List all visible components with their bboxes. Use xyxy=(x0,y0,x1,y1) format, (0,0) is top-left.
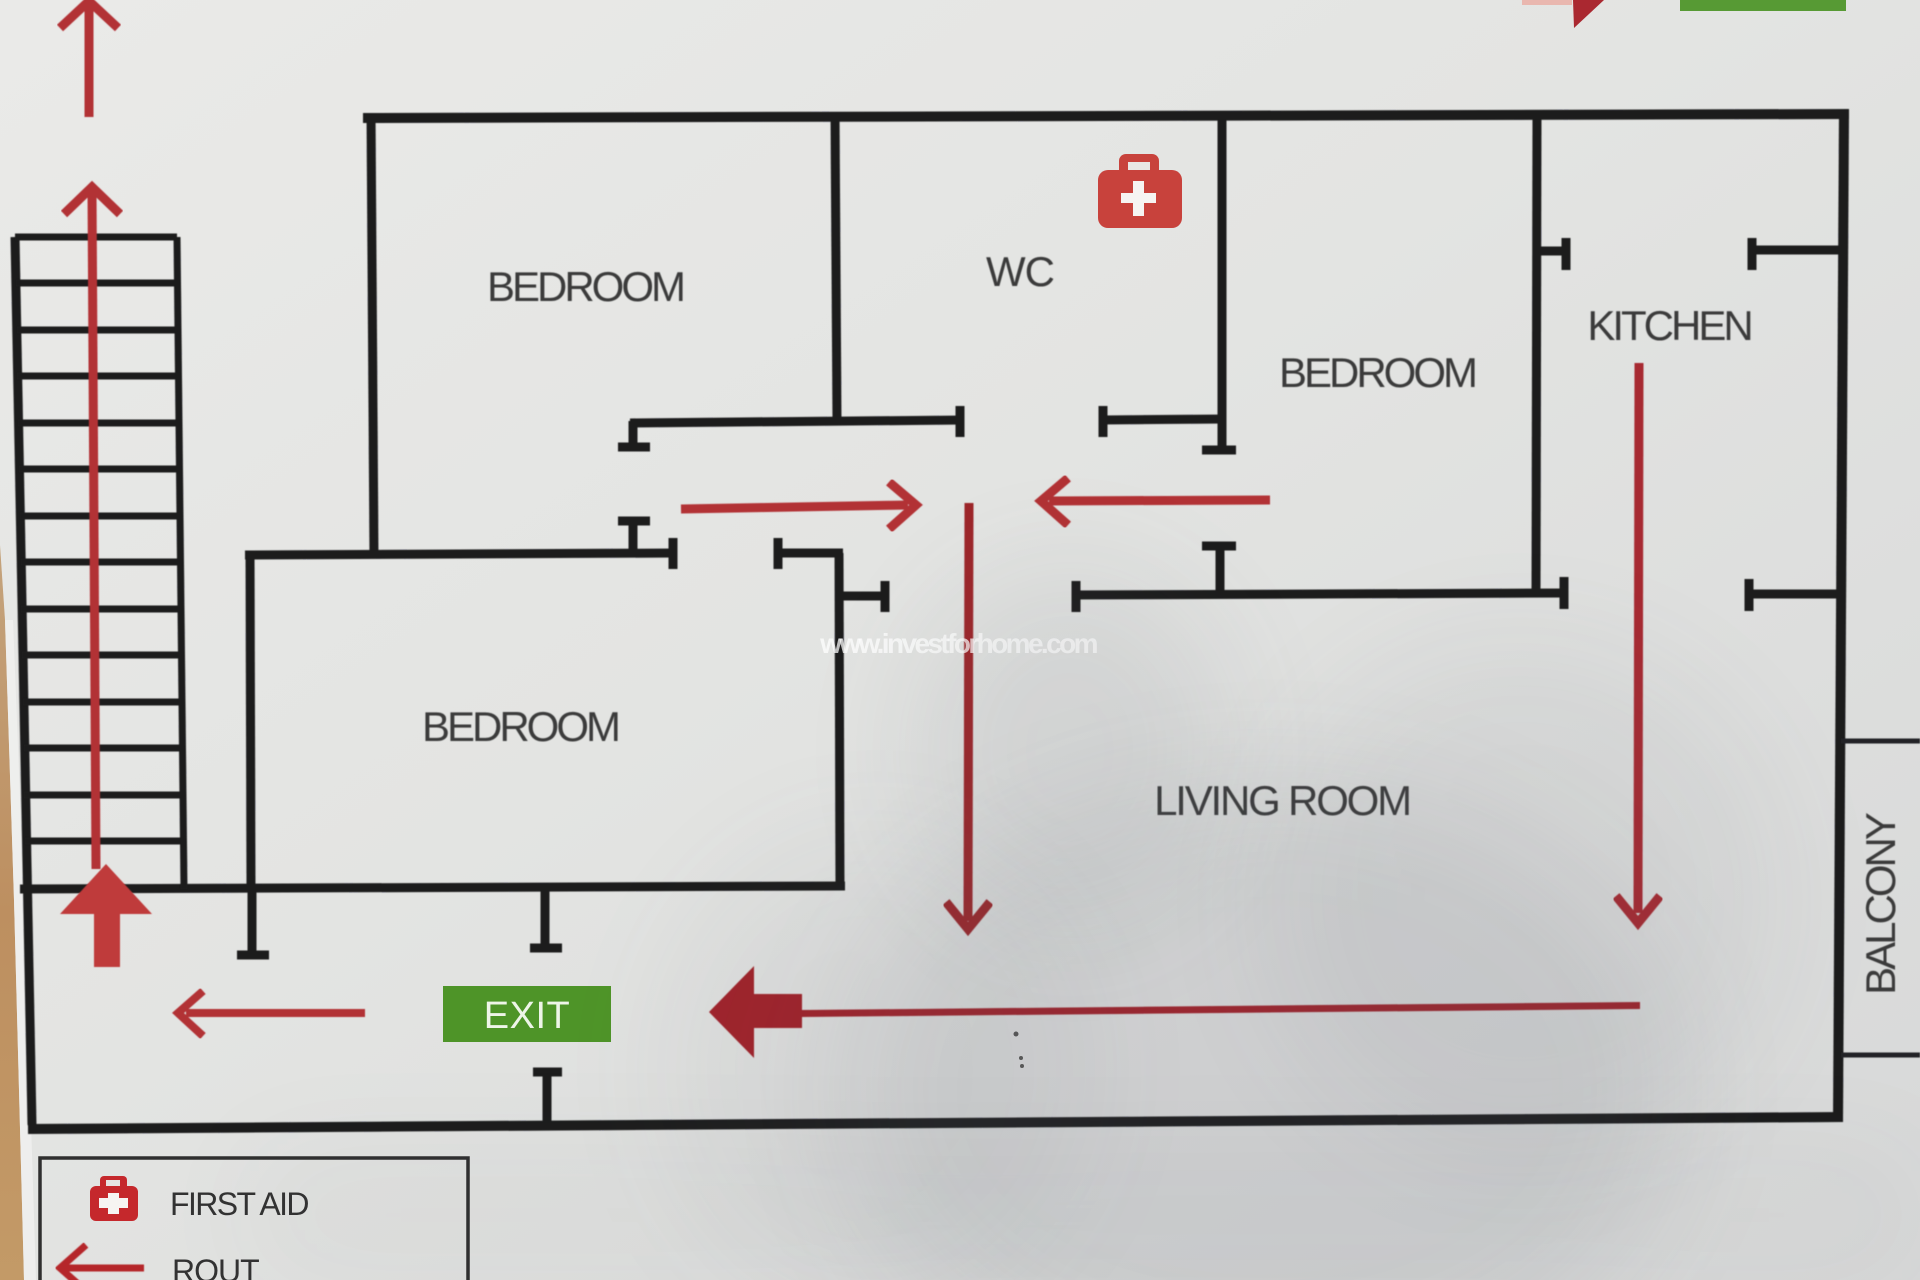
svg-text:BALCONY: BALCONY xyxy=(1857,812,1904,995)
svg-text:BEDROOM: BEDROOM xyxy=(1279,349,1475,396)
svg-text:BEDROOM: BEDROOM xyxy=(422,703,618,750)
svg-text:KITCHEN: KITCHEN xyxy=(1587,302,1750,349)
svg-text:EXIT: EXIT xyxy=(484,995,570,1037)
svg-text:BEDROOM: BEDROOM xyxy=(487,263,683,310)
svg-text:WC: WC xyxy=(986,248,1054,295)
svg-text:ROUT: ROUT xyxy=(172,1253,259,1280)
